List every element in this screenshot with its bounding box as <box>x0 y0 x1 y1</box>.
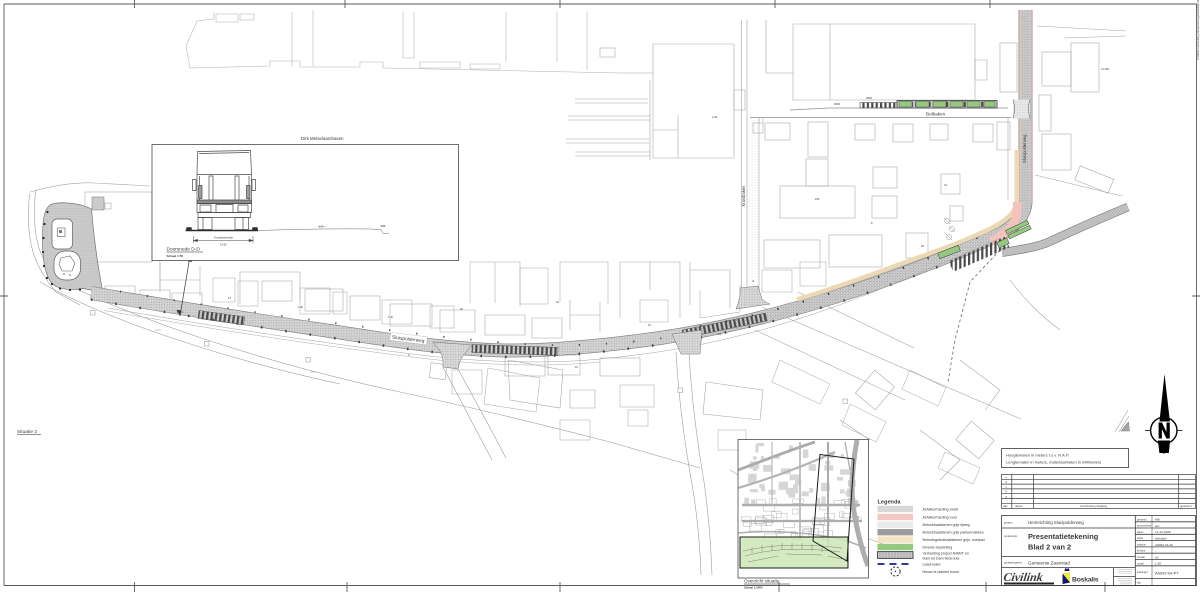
svg-text:Dam tot Dam fietsroute: Dam tot Dam fietsroute <box>923 556 960 560</box>
svg-text:wijz: wijz <box>1003 504 1008 508</box>
svg-text:wC: wC <box>1155 524 1160 528</box>
svg-text:Asfaltverharding rood: Asfaltverharding rood <box>923 515 957 519</box>
svg-text:omschrijving wijziging: omschrijving wijziging <box>1080 504 1107 508</box>
svg-text:Situatie 2: Situatie 2 <box>17 429 37 435</box>
svg-text:opdrachtgever: opdrachtgever <box>1004 561 1022 565</box>
svg-text:Doorsnede D-D: Doorsnede D-D <box>167 247 201 253</box>
svg-text:Boskalis: Boskalis <box>1072 577 1099 584</box>
svg-text:Civilink: Civilink <box>1003 570 1044 584</box>
svg-text:project: project <box>1004 521 1013 525</box>
svg-text:Bolbaken: Bolbaken <box>926 112 946 117</box>
svg-text:Betonstraatstenen grijs rijweg: Betonstraatstenen grijs rijweg <box>923 523 970 527</box>
svg-text:Hoogtematen in meters t.o.v. N: Hoogtematen in meters t.o.v. N.A.P. <box>1006 453 1069 458</box>
svg-text:Verharding project AVANT en: Verharding project AVANT en <box>923 552 969 556</box>
svg-text:Blad 2 van 2: Blad 2 van 2 <box>1028 543 1071 552</box>
svg-text:wijz.: wijz. <box>1137 583 1142 585</box>
svg-text:14.50: 14.50 <box>220 243 227 247</box>
svg-text:definitief: definitief <box>1155 537 1167 541</box>
svg-text:2-40: 2-40 <box>712 115 718 119</box>
svg-text:projectnr.: projectnr. <box>1137 543 1147 546</box>
svg-text:Sluispolderweg: Sluispolderweg <box>1022 134 1027 163</box>
svg-text:-: - <box>1177 581 1178 585</box>
svg-text:-1.05: -1.05 <box>318 227 324 229</box>
svg-text:gecontroleerd: gecontroleerd <box>1137 525 1152 528</box>
svg-text:Fundatiebreedte: Fundatiebreedte <box>214 236 233 240</box>
svg-text:schaal: schaal <box>1137 563 1144 565</box>
svg-text:Presentatietekening: Presentatietekening <box>1028 532 1099 541</box>
svg-text:MB: MB <box>1155 518 1160 522</box>
svg-text:1:50: 1:50 <box>1155 562 1161 566</box>
svg-text:186: 186 <box>815 197 820 201</box>
svg-text:Schaal 1:50: Schaal 1:50 <box>167 254 184 258</box>
svg-text:getekend: getekend <box>1137 518 1147 521</box>
svg-text:datum: datum <box>1137 531 1143 534</box>
svg-text:A6092-04-20: A6092-04-20 <box>1155 543 1173 547</box>
svg-text:datum: datum <box>1015 504 1023 508</box>
svg-text:-: - <box>1155 549 1156 553</box>
svg-text:P:\A6092 herinrichting Sluispo: P:\A6092 herinrichting Sluispolderweg\te… <box>1196 0 1200 60</box>
svg-text:41.290: 41.290 <box>1101 67 1109 71</box>
svg-text:14-12-2020: 14-12-2020 <box>1155 530 1171 534</box>
svg-text:getekend: getekend <box>1180 504 1192 508</box>
svg-text:Betonstraatstenen grijs parkee: Betonstraatstenen grijs parkeervakken <box>923 531 984 535</box>
svg-text:A2: A2 <box>1155 555 1159 559</box>
svg-text:-0.84: -0.84 <box>380 226 386 228</box>
svg-text:Laadroutes: Laadroutes <box>923 562 941 566</box>
svg-text:Kruisbaken: Kruisbaken <box>741 185 746 207</box>
svg-text:Legenda: Legenda <box>878 500 902 506</box>
svg-text:Diverse beplanting: Diverse beplanting <box>923 545 953 549</box>
svg-text:Schaal 1:5000: Schaal 1:5000 <box>744 586 763 590</box>
svg-text:1.4b: 1.4b <box>298 305 304 309</box>
svg-text:Overzicht situatie: Overzicht situatie <box>744 579 780 584</box>
svg-text:Asfaltverharding zwart: Asfaltverharding zwart <box>923 507 959 511</box>
svg-text:onderwerp: onderwerp <box>1004 534 1018 538</box>
svg-text:tekeningnr.: tekeningnr. <box>1137 571 1149 574</box>
svg-text:A6092-04-PT: A6092-04-PT <box>1155 571 1179 576</box>
svg-text:Dirk Metselaarshaven: Dirk Metselaarshaven <box>301 136 344 141</box>
svg-text:1.4b: 1.4b <box>388 315 394 319</box>
svg-text:Nieuw te planten boom: Nieuw te planten boom <box>923 570 960 574</box>
svg-text:bestand: bestand <box>1137 550 1146 553</box>
svg-text:Betontegels/straatstenen grijs: Betontegels/straatstenen grijs, voetpad <box>923 538 985 542</box>
svg-text:status: status <box>1137 537 1144 540</box>
svg-text:Herinrichting Sluispolderweg: Herinrichting Sluispolderweg <box>1028 520 1084 525</box>
svg-text:Gemeente Zaanstad: Gemeente Zaanstad <box>1028 561 1070 566</box>
svg-text:Lengtematen in meters, materia: Lengtematen in meters, materiaalmaten in… <box>1006 460 1101 465</box>
svg-text:formaat: formaat <box>1137 556 1145 559</box>
